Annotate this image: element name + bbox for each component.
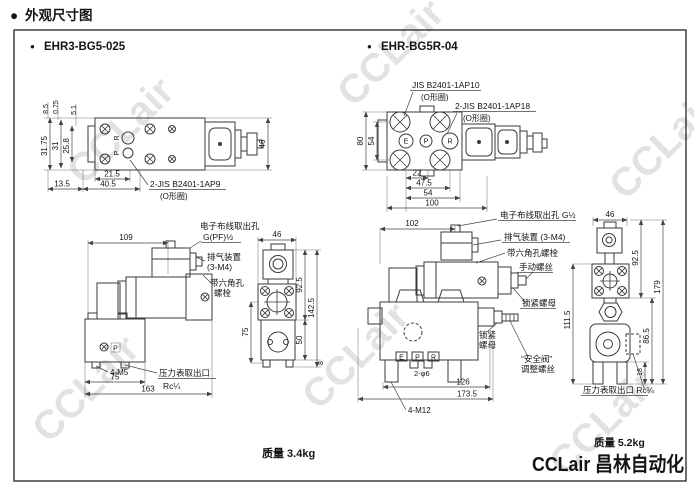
watermark-layer: CCLair CCLair CCLair CCLair CCLair CCLai… <box>24 0 694 485</box>
gauge-port-label: 压力表取出口 <box>159 368 210 378</box>
watermark-text: CCLair <box>601 84 694 208</box>
dim-label: 8 <box>318 361 325 365</box>
dim-label: 50 <box>295 335 304 344</box>
dim-label: 0.75 <box>53 100 60 114</box>
dim-label: 111.5 <box>563 310 572 329</box>
hole-spec: 2-φ6 <box>414 369 430 378</box>
dimension-drawing-page: CCLair CCLair CCLair CCLair CCLair CCLai… <box>0 0 694 488</box>
gauge-port-label: 压力表取出口 Rc¼ <box>583 385 655 395</box>
dim-label: 5.1 <box>71 105 78 115</box>
oring-note-left: (O形圈) <box>160 192 188 201</box>
dim-label: 54 <box>424 189 433 198</box>
hex-socket-bolt-label2: 螺栓 <box>214 288 232 298</box>
gauge-port-thread: Rc¼ <box>163 381 181 391</box>
locknut2-label2: 螺母 <box>479 340 496 350</box>
port-label-p: P <box>113 346 118 353</box>
dim-label: 54 <box>367 136 376 145</box>
dim-label: 75 <box>241 327 250 336</box>
dim-label: 75 <box>111 373 120 382</box>
mount-bolt-spec: 4-M12 <box>408 406 431 415</box>
dim-label: 25.8 <box>62 138 71 154</box>
dim-label: 179 <box>653 280 662 294</box>
bleed-device-thread: (3-M4) <box>207 262 232 272</box>
oring-spec-2: 2-JIS B2401-1AP18 <box>455 101 530 111</box>
hex-socket-bolt-label: 带六角孔螺栓 <box>507 248 559 258</box>
wiring-port-thread: G(PF)½ <box>203 232 233 242</box>
bullet-icon: ● <box>10 8 18 23</box>
dim-label: 92.5 <box>295 277 304 293</box>
dim-label: 31.75 <box>40 135 49 156</box>
dim-label: 21.5 <box>104 170 120 179</box>
dim-label: 142.5 <box>307 297 316 318</box>
right-side-view: 46 111.5 92.5 179 86.5 <box>563 210 667 396</box>
dim-label: 46 <box>273 230 282 239</box>
watermark-text: CCLair <box>59 69 183 193</box>
dim-label: 109 <box>119 233 133 242</box>
manual-screw-label: 手动螺丝 <box>519 262 554 272</box>
mass-label-right: 质量 5.2kg <box>594 436 645 449</box>
dim-label: 163 <box>141 385 155 394</box>
left-side-view: 46 75 92.5 142.5 50 8 <box>241 230 325 367</box>
dim-label: 8.5 <box>43 104 50 114</box>
dim-label: 102 <box>405 219 419 228</box>
port-label-r: R <box>447 139 452 146</box>
safety-valve-label: “安全阀” <box>521 354 552 364</box>
model-title-left: EHR3-BG5-025 <box>44 41 126 53</box>
wiring-port-label: 电子布线取出孔 G½ <box>500 210 576 220</box>
oring-note-2: (O形圈) <box>463 114 491 123</box>
dim-label: 92.5 <box>631 250 640 266</box>
drawing-canvas: CCLair CCLair CCLair CCLair CCLair CCLai… <box>0 0 694 488</box>
model-title-right: EHR-BG5R-04 <box>381 41 458 53</box>
safety-valve-label2: 调整螺丝 <box>521 364 556 374</box>
locknut2-label: 锁紧 <box>479 330 496 340</box>
port-label-e: E <box>404 139 409 146</box>
port-label-p: P <box>424 139 429 146</box>
dim-label: 13.5 <box>54 180 70 189</box>
dim-label: 22 <box>413 169 422 178</box>
bullet-icon: ● <box>30 42 35 51</box>
watermark-text: CCLair <box>24 327 148 451</box>
brand-logo: CCLair 昌林自动化 <box>532 452 684 476</box>
oring-spec-left: 2-JIS B2401-1AP9 <box>150 179 221 189</box>
oring-spec-1: JIS B2401-1AP10 <box>412 80 480 90</box>
dim-label: 40.5 <box>100 180 116 189</box>
dim-label: 80 <box>356 136 365 145</box>
page-header: ● 外观尺寸图 <box>10 7 93 23</box>
dim-label: 173.5 <box>457 390 478 399</box>
mass-label-left: 质量 3.4kg <box>262 446 315 460</box>
wiring-port-label: 电子布线取出孔 <box>200 221 260 231</box>
dim-label: 47.5 <box>416 179 432 188</box>
port-label-e: E <box>399 355 404 362</box>
port-label-p: P <box>114 150 121 155</box>
dim-label: 31 <box>51 141 60 150</box>
dim-label: 86.5 <box>642 328 651 344</box>
dim-label: 46 <box>258 139 267 148</box>
dim-label: 126 <box>456 378 470 387</box>
bleed-device-label: 排气装置 (3-M4) <box>504 232 566 242</box>
bullet-icon: ● <box>367 42 372 51</box>
dim-label: 100 <box>425 199 439 208</box>
hex-socket-bolt-label: 带六角孔 <box>210 278 245 288</box>
bleed-device-label: 排气装置 <box>207 252 242 262</box>
page-title: 外观尺寸图 <box>25 7 93 23</box>
oring-note-1: (O形圈) <box>421 93 449 102</box>
right-top-view: JIS B2401-1AP10 (O形圈) 2-JIS B2401-1AP18 … <box>378 80 547 176</box>
right-top-view-dimensions: 80 54 22 47.5 54 100 <box>356 112 487 212</box>
dim-label: 46 <box>606 210 615 219</box>
locknut-label: 锁紧螺母 <box>522 298 556 308</box>
port-label-r: R <box>114 135 121 140</box>
